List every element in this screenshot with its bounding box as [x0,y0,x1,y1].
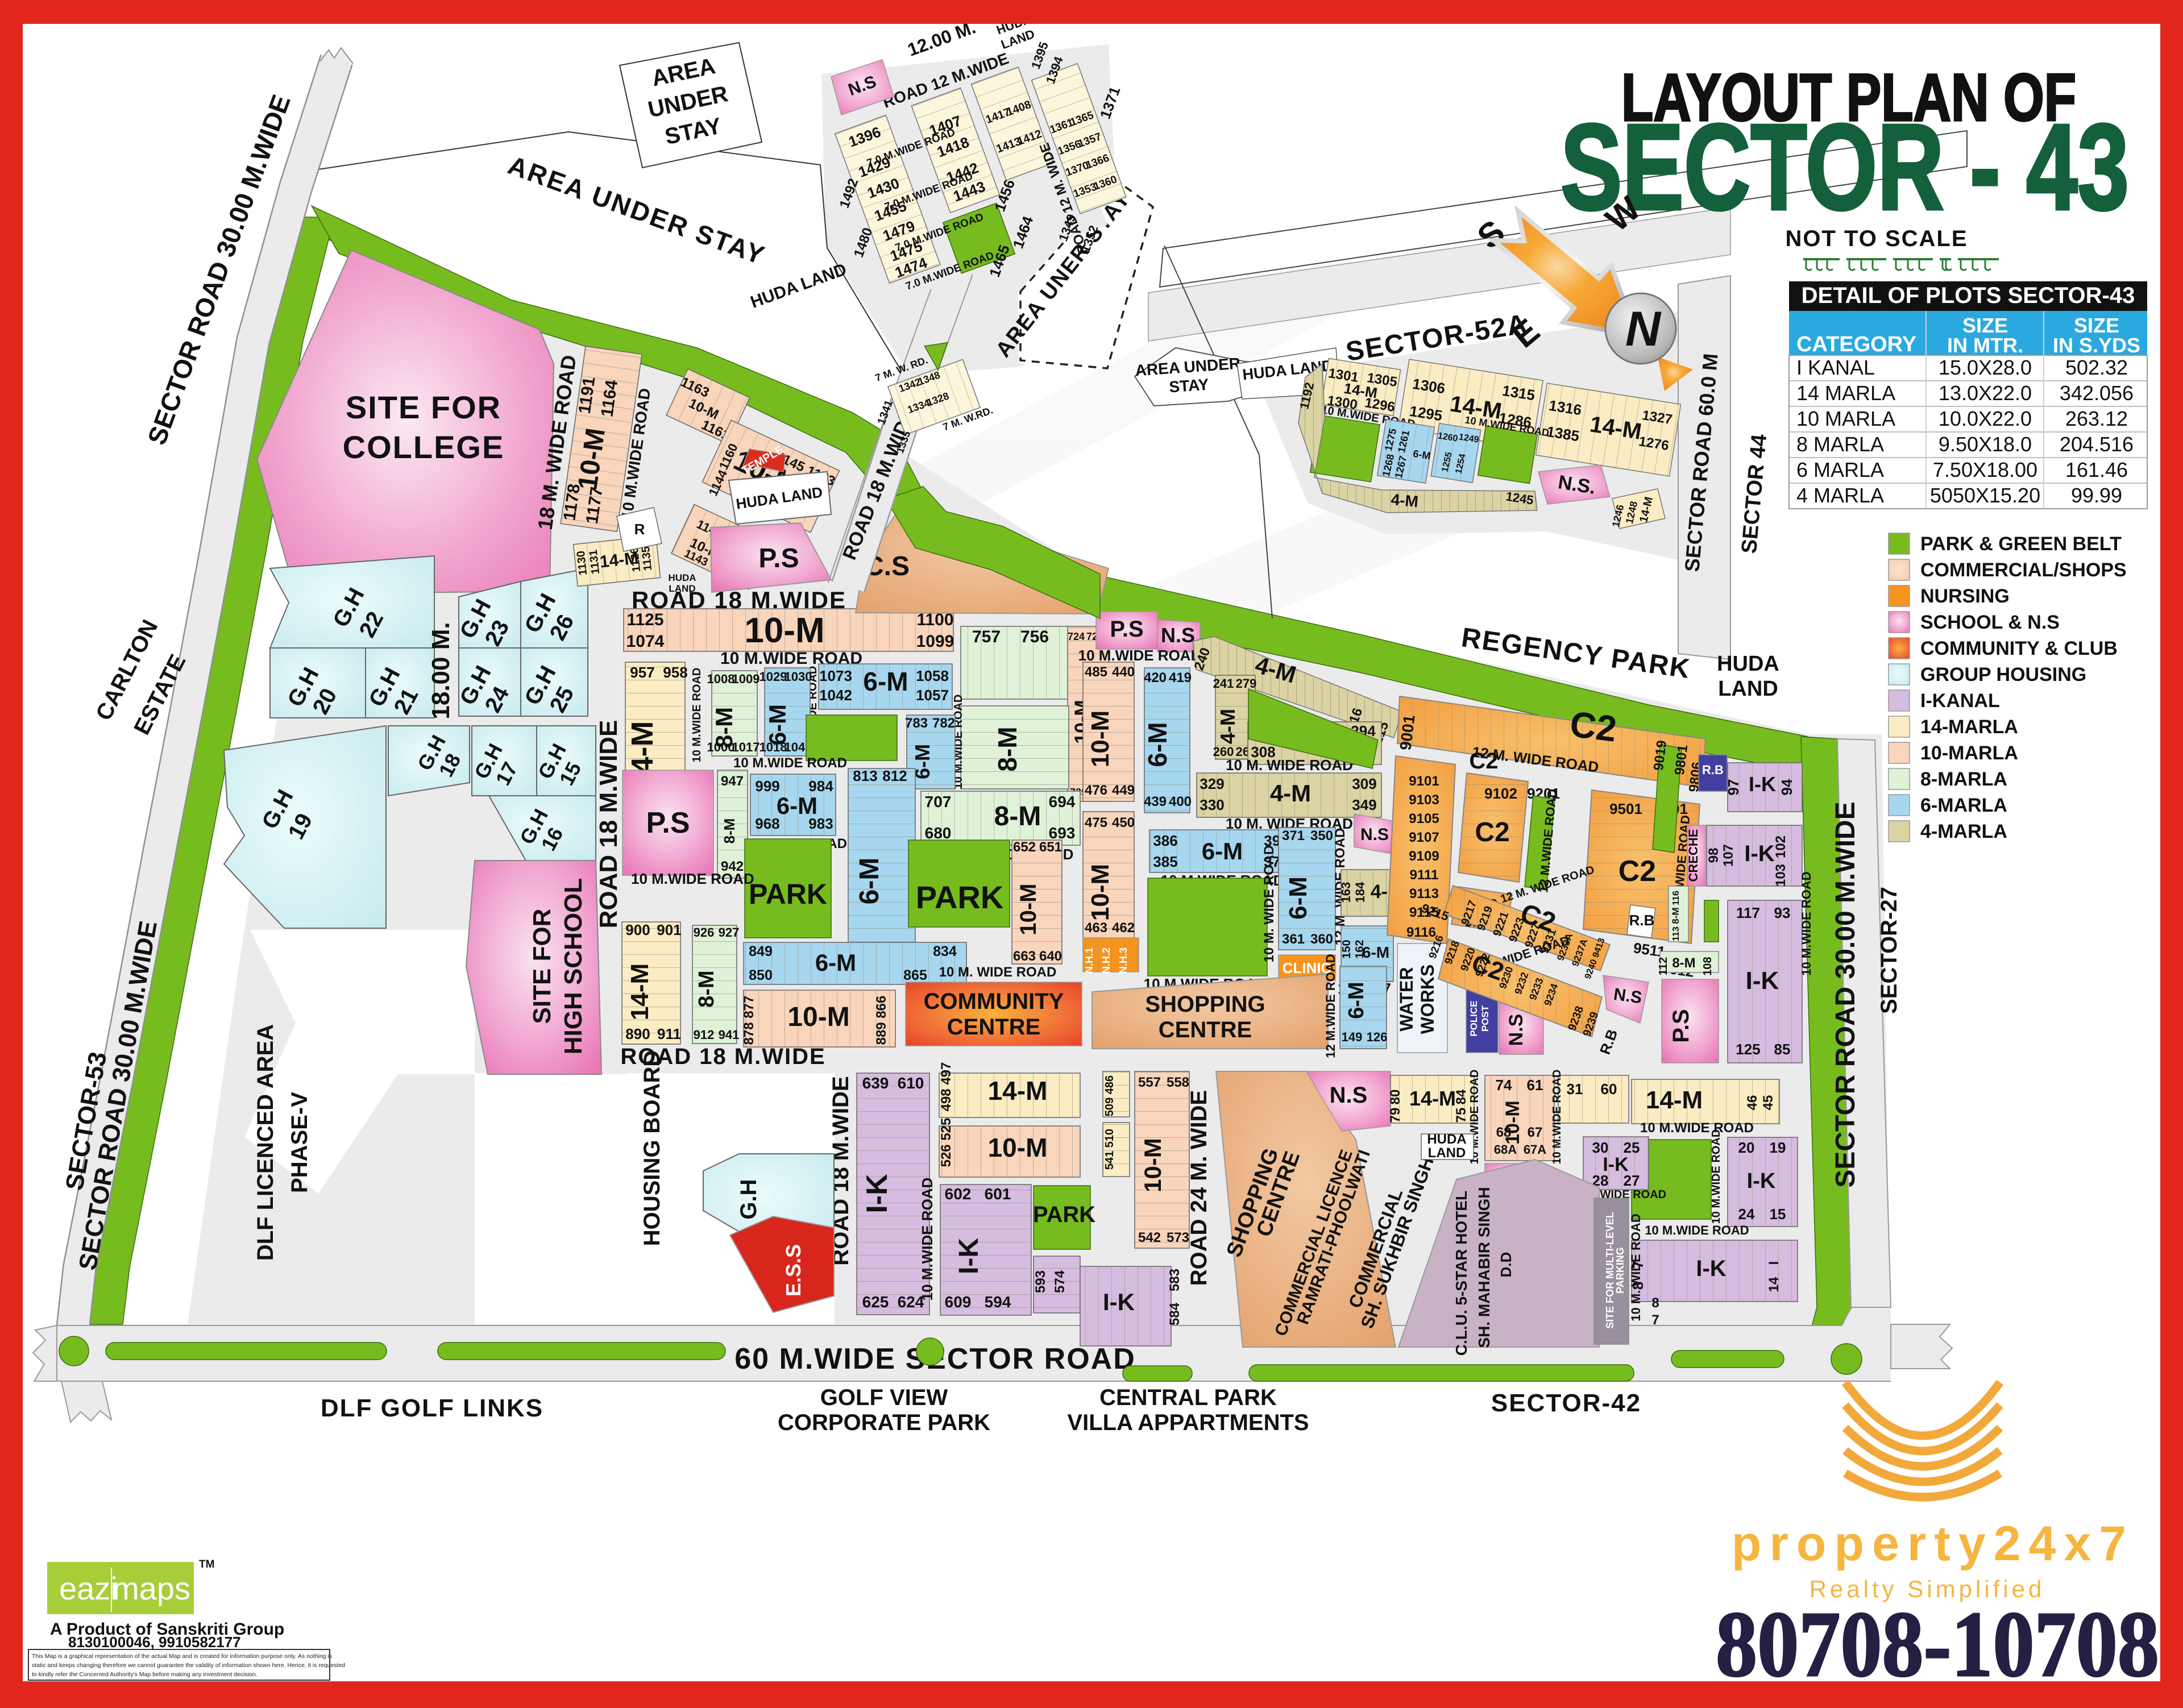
svg-text:8-M: 8-M [1670,907,1681,924]
svg-text:1008: 1008 [707,672,735,686]
svg-text:14-M: 14-M [1409,1087,1456,1110]
svg-text:to kindly refer the Concerned: to kindly refer the Concerned Authority'… [32,1671,258,1678]
svg-text:PARK: PARK [1033,1202,1095,1227]
svg-text:4 MARLA: 4 MARLA [1796,484,1884,507]
svg-text:8-M: 8-M [994,801,1041,832]
svg-text:15.0X28.0: 15.0X28.0 [1939,356,2032,379]
svg-text:IN S.YDS: IN S.YDS [2053,334,2140,357]
svg-text:4-M: 4-M [1270,780,1311,807]
svg-text:SITE FOR: SITE FOR [346,389,501,425]
svg-text:10 M.WIDE ROAD: 10 M.WIDE ROAD [1799,871,1813,975]
svg-text:440: 440 [1112,664,1135,680]
svg-text:476: 476 [1085,783,1107,798]
svg-text:574: 574 [1052,1270,1068,1293]
svg-text:I: I [1766,1261,1782,1265]
svg-text:984: 984 [808,778,833,795]
svg-text:N.H.1: N.H.1 [1084,947,1095,974]
svg-text:WORKS: WORKS [1417,965,1438,1034]
svg-text:9501: 9501 [1609,800,1642,817]
svg-text:6-M: 6-M [863,667,908,696]
svg-text:6-MARLA: 6-MARLA [1920,795,2007,816]
svg-text:350: 350 [1310,828,1333,843]
svg-text:834: 834 [933,944,957,959]
svg-text:149: 149 [1342,1030,1363,1044]
svg-text:68A: 68A [1494,1142,1517,1157]
svg-text:80: 80 [1388,1090,1403,1105]
svg-text:386: 386 [1153,832,1177,849]
svg-text:LAND: LAND [1428,1145,1466,1161]
svg-text:98: 98 [1706,848,1721,863]
svg-text:ROAD 18 M.WIDE: ROAD 18 M.WIDE [620,1044,825,1069]
svg-text:890: 890 [625,1025,650,1042]
svg-text:541 510: 541 510 [1103,1129,1116,1170]
svg-text:9109: 9109 [1409,849,1439,864]
svg-text:9105: 9105 [1409,811,1439,826]
svg-text:PARKING: PARKING [1615,1247,1626,1294]
svg-text:CENTRE: CENTRE [947,1015,1040,1040]
svg-text:61: 61 [1527,1077,1543,1094]
svg-text:SH. MAHABIR SINGH: SH. MAHABIR SINGH [1475,1187,1493,1348]
svg-text:10 M.WIDE ROAD: 10 M.WIDE ROAD [1640,1120,1754,1136]
svg-text:117: 117 [1736,904,1760,921]
svg-text:N.S: N.S [1612,985,1643,1008]
svg-text:GROUP HOUSING: GROUP HOUSING [1920,664,2086,685]
svg-text:102: 102 [1773,836,1788,858]
svg-text:694: 694 [1049,793,1076,811]
svg-text:45: 45 [1761,1095,1776,1111]
svg-text:1057: 1057 [916,687,949,704]
svg-text:I-K: I-K [1746,967,1779,995]
svg-text:HOUSING BOARD: HOUSING BOARD [640,1050,665,1246]
svg-text:651: 651 [1039,840,1062,855]
svg-text:1009: 1009 [732,672,760,686]
svg-text:C.L.U. 5-STAR HOTEL: C.L.U. 5-STAR HOTEL [1452,1191,1470,1356]
svg-text:1135: 1135 [640,546,654,571]
svg-text:67A: 67A [1524,1142,1546,1157]
svg-text:R.B: R.B [1702,763,1724,777]
svg-text:80708-10708: 80708-10708 [1716,1592,2159,1696]
svg-text:6-M: 6-M [1143,722,1172,767]
svg-text:SECTOR ROAD 30.00 M.WIDE: SECTOR ROAD 30.00 M.WIDE [1831,801,1861,1187]
svg-text:8-M: 8-M [721,818,738,844]
svg-text:PHASE-V: PHASE-V [287,1092,312,1193]
svg-text:27: 27 [1624,1172,1640,1189]
svg-text:14-M: 14-M [988,1076,1048,1106]
svg-text:I-K: I-K [1749,772,1776,796]
svg-text:558: 558 [1167,1075,1189,1090]
svg-text:STAY: STAY [1168,376,1209,396]
svg-text:GOLF VIEW: GOLF VIEW [820,1385,948,1410]
svg-text:849: 849 [749,944,773,959]
svg-text:N.H.3: N.H.3 [1118,947,1129,974]
svg-text:PARK: PARK [749,878,827,910]
svg-text:14-M: 14-M [626,963,654,1020]
svg-text:9103: 9103 [1409,792,1439,808]
svg-text:10-M: 10-M [988,1133,1048,1162]
svg-text:property24x7: property24x7 [1732,1516,2134,1571]
svg-text:601: 601 [985,1185,1011,1203]
svg-text:C2: C2 [1618,855,1656,888]
svg-text:360: 360 [1310,932,1333,947]
svg-text:maps: maps [113,1570,190,1606]
svg-text:263.12: 263.12 [2065,407,2128,430]
svg-text:G.H: G.H [736,1179,761,1219]
svg-text:HIGH SCHOOL: HIGH SCHOOL [559,878,587,1054]
svg-text:8130100046, 9910582177: 8130100046, 9910582177 [68,1634,241,1651]
svg-text:I-K: I-K [954,1238,984,1274]
svg-text:10 M. WIDE ROAD: 10 M. WIDE ROAD [1629,1214,1643,1321]
svg-text:6-M: 6-M [764,704,791,745]
svg-text:639: 639 [862,1074,889,1092]
svg-text:94: 94 [1778,779,1795,795]
svg-text:125: 125 [1736,1041,1760,1058]
svg-text:1099: 1099 [916,632,954,651]
svg-text:309: 309 [1352,775,1376,792]
svg-text:N: N [1625,302,1662,356]
svg-text:901: 901 [657,921,681,938]
svg-text:957: 957 [630,664,654,681]
svg-text:184: 184 [1353,882,1367,903]
svg-text:C2: C2 [1475,817,1509,847]
svg-text:ROAD 24 M. WIDE: ROAD 24 M. WIDE [1186,1090,1211,1286]
svg-text:783: 783 [905,716,928,731]
svg-text:10 M.WIDE ROAD: 10 M.WIDE ROAD [733,755,847,771]
svg-text:498 497: 498 497 [939,1062,954,1112]
svg-text:113: 113 [1671,926,1681,941]
svg-text:10-M: 10-M [1086,864,1114,921]
svg-text:9111: 9111 [1410,867,1439,883]
svg-text:107: 107 [1721,844,1736,867]
svg-text:241: 241 [1213,676,1234,691]
svg-text:8-M: 8-M [993,726,1022,771]
svg-text:6-M: 6-M [854,858,885,905]
svg-text:707: 707 [925,793,952,811]
svg-text:150: 150 [1340,940,1353,958]
svg-text:IN MTR.: IN MTR. [1947,334,2023,357]
svg-text:812: 812 [882,767,907,784]
svg-text:This Map is a graphical repres: This Map is a graphical representation o… [32,1653,332,1660]
svg-text:371: 371 [1282,828,1305,843]
svg-text:93: 93 [1774,904,1791,921]
svg-text:6 MARLA: 6 MARLA [1796,458,1884,481]
svg-text:I-KANAL: I-KANAL [1920,690,2000,712]
svg-text:400: 400 [1169,794,1192,809]
svg-text:1018: 1018 [760,740,787,754]
svg-text:652: 652 [1013,840,1036,855]
svg-text:10-M: 10-M [1086,710,1114,767]
svg-text:PARK & GREEN BELT: PARK & GREEN BELT [1920,533,2122,555]
svg-text:9.50X18.0: 9.50X18.0 [1939,433,2032,456]
svg-text:C2: C2 [1568,703,1619,749]
svg-text:850: 850 [749,967,773,983]
svg-text:1030: 1030 [785,670,812,684]
svg-text:CATEGORY: CATEGORY [1796,333,1916,356]
svg-text:DLF GOLF LINKS: DLF GOLF LINKS [321,1394,543,1422]
svg-text:POLICE: POLICE [1468,1000,1479,1036]
svg-text:757: 757 [972,627,1001,646]
svg-text:6-M: 6-M [1284,876,1312,920]
svg-text:126: 126 [1367,1030,1388,1044]
svg-text:112: 112 [1657,957,1670,975]
svg-text:10 M.WIDE ROAD: 10 M.WIDE ROAD [631,870,754,887]
svg-text:19: 19 [1770,1139,1786,1156]
svg-text:9116: 9116 [1406,925,1436,940]
svg-text:8-MARLA: 8-MARLA [1920,768,2007,790]
svg-text:108: 108 [1701,957,1714,975]
svg-text:CORPORATE PARK: CORPORATE PARK [778,1410,990,1435]
svg-text:1073: 1073 [819,667,852,684]
svg-text:D.D: D.D [1497,1252,1514,1278]
svg-text:724: 724 [1068,631,1085,642]
svg-text:10-M: 10-M [787,1002,849,1032]
svg-text:911: 911 [657,1025,681,1042]
svg-text:CENTRE: CENTRE [1159,1017,1252,1042]
svg-text:4-M: 4-M [1216,709,1239,744]
svg-text:99.99: 99.99 [2071,484,2122,507]
svg-text:593: 593 [1033,1270,1048,1293]
svg-text:8 MARLA: 8 MARLA [1796,433,1884,456]
svg-text:625: 625 [862,1293,889,1311]
svg-text:75: 75 [1454,1108,1469,1123]
svg-text:6-M: 6-M [1202,838,1243,865]
svg-text:583: 583 [1167,1269,1182,1291]
svg-text:9102: 9102 [1484,785,1517,802]
svg-text:NOT TO SCALE: NOT TO SCALE [1785,226,1968,251]
svg-text:420: 420 [1144,670,1167,685]
svg-text:eazi: eazi [59,1570,118,1606]
svg-text:ROAD 18 M.WIDE: ROAD 18 M.WIDE [595,720,622,929]
svg-text:12 M.WIDE ROAD: 12 M.WIDE ROAD [1323,954,1338,1058]
svg-text:20: 20 [1738,1139,1755,1156]
svg-text:6-M: 6-M [815,949,856,976]
svg-text:SECTOR-42: SECTOR-42 [1491,1389,1641,1417]
svg-text:509 486: 509 486 [1103,1075,1116,1116]
svg-text:9107: 9107 [1409,830,1439,845]
svg-text:594: 594 [985,1293,1011,1311]
svg-text:R.B: R.B [1629,912,1655,929]
svg-text:485: 485 [1085,664,1107,680]
svg-text:584: 584 [1167,1302,1182,1325]
svg-text:10-M: 10-M [1016,883,1041,935]
svg-text:10 M.WIDE ROAD: 10 M.WIDE ROAD [1551,1070,1563,1165]
svg-text:6-M: 6-M [1344,982,1368,1019]
svg-text:349: 349 [1352,796,1376,813]
svg-text:8: 8 [1651,1295,1659,1311]
svg-text:I-K: I-K [1747,1169,1776,1193]
svg-text:865: 865 [903,967,927,983]
svg-text:HUDA: HUDA [1427,1132,1466,1147]
svg-text:P.S: P.S [646,807,690,840]
svg-text:79: 79 [1388,1108,1403,1123]
svg-text:SITE FOR MULTI-LEVEL: SITE FOR MULTI-LEVEL [1604,1212,1616,1329]
svg-text:NURSING: NURSING [1920,585,2010,607]
svg-text:SHOPPING: SHOPPING [1145,992,1265,1017]
svg-text:SCHOOL & N.S: SCHOOL & N.S [1920,612,2060,633]
svg-text:HUDA: HUDA [1717,652,1779,676]
svg-text:I KANAL: I KANAL [1796,356,1875,379]
svg-text:103: 103 [1773,864,1788,887]
svg-text:5050X15.20: 5050X15.20 [1930,484,2040,507]
svg-text:10 M.WIDE ROAD: 10 M.WIDE ROAD [919,1178,936,1301]
svg-text:24: 24 [1738,1206,1755,1223]
svg-text:10.0X22.0: 10.0X22.0 [1939,407,2032,430]
svg-text:N.H.2: N.H.2 [1101,947,1112,974]
svg-text:342.056: 342.056 [2060,381,2134,405]
svg-text:1029: 1029 [760,670,787,684]
svg-text:419: 419 [1169,670,1192,685]
svg-text:1042: 1042 [819,687,852,704]
svg-text:900: 900 [625,921,650,938]
svg-text:R: R [634,521,645,538]
svg-text:361: 361 [1282,932,1305,947]
svg-text:POST: POST [1480,1005,1491,1032]
svg-text:663: 663 [1013,949,1036,964]
svg-text:161.46: 161.46 [2065,458,2128,481]
svg-text:557: 557 [1138,1075,1161,1090]
svg-text:449: 449 [1112,783,1135,798]
svg-text:10-M: 10-M [744,611,824,650]
svg-text:VILLA APPARTMENTS: VILLA APPARTMENTS [1067,1410,1309,1435]
svg-text:204.516: 204.516 [2060,433,2134,456]
svg-text:782: 782 [932,716,955,731]
svg-text:4-M: 4-M [1390,491,1419,510]
svg-text:9113: 9113 [1409,886,1439,901]
svg-text:116: 116 [1671,891,1681,905]
svg-text:8-M: 8-M [1672,955,1695,971]
svg-text:878 877: 878 877 [741,996,757,1045]
svg-text:6-M: 6-M [1362,944,1389,961]
svg-text:I-K: I-K [861,1174,894,1214]
svg-text:329: 329 [1200,775,1224,792]
svg-text:84: 84 [1454,1089,1469,1104]
svg-text:680: 680 [925,824,952,842]
svg-text:926: 926 [694,925,715,940]
svg-text:COLLEGE: COLLEGE [343,429,505,465]
svg-text:SECTOR-27: SECTOR-27 [1877,887,1902,1014]
svg-text:97: 97 [1725,779,1742,796]
svg-text:N.S: N.S [1330,1083,1368,1108]
svg-text:10 M.WIDE ROAD: 10 M.WIDE ROAD [1645,1223,1749,1237]
svg-text:I-K: I-K [1744,841,1774,866]
svg-text:14-MARLA: 14-MARLA [1920,716,2018,738]
svg-text:10-M: 10-M [1139,1138,1166,1192]
svg-text:31: 31 [1567,1081,1583,1098]
svg-text:542: 542 [1138,1230,1161,1245]
svg-text:SECTOR - 43: SECTOR - 43 [1561,98,2129,235]
svg-text:10 M.WIDE ROAD: 10 M.WIDE ROAD [1078,647,1202,664]
svg-text:CRECHE: CRECHE [1686,829,1700,882]
svg-text:279: 279 [1236,676,1257,691]
svg-text:P.S: P.S [758,543,799,574]
svg-text:46: 46 [1745,1095,1760,1111]
svg-text:475: 475 [1085,815,1107,830]
svg-text:10 M.WIDE ROAD: 10 M.WIDE ROAD [691,668,703,763]
svg-text:SITE FOR: SITE FOR [528,909,556,1024]
svg-text:N.S: N.S [1360,825,1389,844]
svg-text:WATER: WATER [1396,967,1417,1031]
svg-text:462: 462 [1112,920,1135,936]
svg-text:163: 163 [1339,882,1353,903]
svg-text:74: 74 [1496,1077,1512,1094]
svg-text:1000: 1000 [707,740,735,754]
svg-text:1058: 1058 [916,667,949,684]
svg-text:15: 15 [1770,1206,1786,1223]
svg-text:526 525: 526 525 [939,1118,954,1167]
svg-text:912: 912 [694,1028,715,1042]
svg-text:10-MARLA: 10-MARLA [1920,742,2018,764]
svg-text:HUDA: HUDA [668,572,696,583]
svg-text:927: 927 [719,925,740,940]
svg-text:TM: TM [199,1559,214,1570]
svg-text:N.S: N.S [1505,1014,1527,1046]
svg-text:947: 947 [721,774,744,789]
svg-text:610: 610 [898,1074,924,1092]
svg-text:14: 14 [1766,1277,1782,1292]
svg-text:502.32: 502.32 [2065,356,2128,379]
svg-text:602: 602 [945,1185,972,1203]
svg-text:609: 609 [945,1293,972,1311]
svg-text:756: 756 [1020,627,1049,646]
svg-text:941: 941 [719,1028,740,1042]
svg-text:static and keeps changing ther: static and keeps changing therefore we c… [32,1662,345,1669]
svg-text:68: 68 [1496,1125,1512,1140]
svg-text:14-M: 14-M [1646,1086,1703,1114]
svg-text:10 MARLA: 10 MARLA [1796,407,1895,430]
svg-text:385: 385 [1153,853,1177,870]
svg-text:85: 85 [1774,1041,1791,1058]
svg-text:N.S: N.S [1161,624,1195,647]
svg-text:P.S: P.S [1110,617,1143,642]
svg-text:COMMERCIAL/SHOPS: COMMERCIAL/SHOPS [1920,559,2127,581]
svg-text:14 MARLA: 14 MARLA [1796,381,1895,405]
svg-text:889 866: 889 866 [874,996,889,1045]
svg-text:PARK: PARK [916,879,1004,915]
svg-text:8-M: 8-M [695,970,719,1007]
svg-text:983: 983 [808,815,833,832]
svg-text:640: 640 [1039,949,1062,964]
svg-text:1125: 1125 [626,610,663,629]
svg-text:CENTRAL PARK: CENTRAL PARK [1099,1385,1277,1410]
svg-text:7: 7 [1651,1312,1659,1328]
svg-text:7.50X18.00: 7.50X18.00 [1933,458,2037,481]
svg-text:67: 67 [1528,1125,1543,1140]
svg-text:1074: 1074 [626,632,665,651]
svg-text:DLF LICENCED AREA: DLF LICENCED AREA [253,1024,278,1261]
svg-text:10 M. WIDE ROAD: 10 M. WIDE ROAD [939,965,1057,980]
svg-text:330: 330 [1200,796,1224,813]
svg-text:60: 60 [1601,1081,1617,1098]
svg-text:LAND: LAND [1718,677,1778,701]
svg-text:4-MARLA: 4-MARLA [1920,821,2007,842]
svg-text:1017: 1017 [732,740,760,754]
svg-text:E.S.S: E.S.S [782,1244,805,1296]
svg-text:10 M. WIDE ROAD: 10 M. WIDE ROAD [1261,845,1277,963]
svg-text:813: 813 [853,767,877,784]
svg-text:13.0X22.0: 13.0X22.0 [1939,381,2032,405]
svg-text:18.00 M.: 18.00 M. [427,622,455,719]
svg-text:9101: 9101 [1409,774,1439,789]
svg-text:LAND: LAND [669,583,695,594]
svg-text:COMMUNITY: COMMUNITY [924,989,1064,1014]
svg-text:958: 958 [663,664,687,681]
svg-text:463: 463 [1085,920,1107,936]
svg-text:C2: C2 [1469,749,1498,774]
svg-text:P.S: P.S [1669,1009,1694,1042]
svg-text:COMMUNITY & CLUB: COMMUNITY & CLUB [1920,638,2118,659]
svg-text:450: 450 [1112,815,1135,830]
svg-text:439: 439 [1144,794,1167,809]
svg-text:DETAIL OF PLOTS SECTOR-43: DETAIL OF PLOTS SECTOR-43 [1802,283,2135,308]
